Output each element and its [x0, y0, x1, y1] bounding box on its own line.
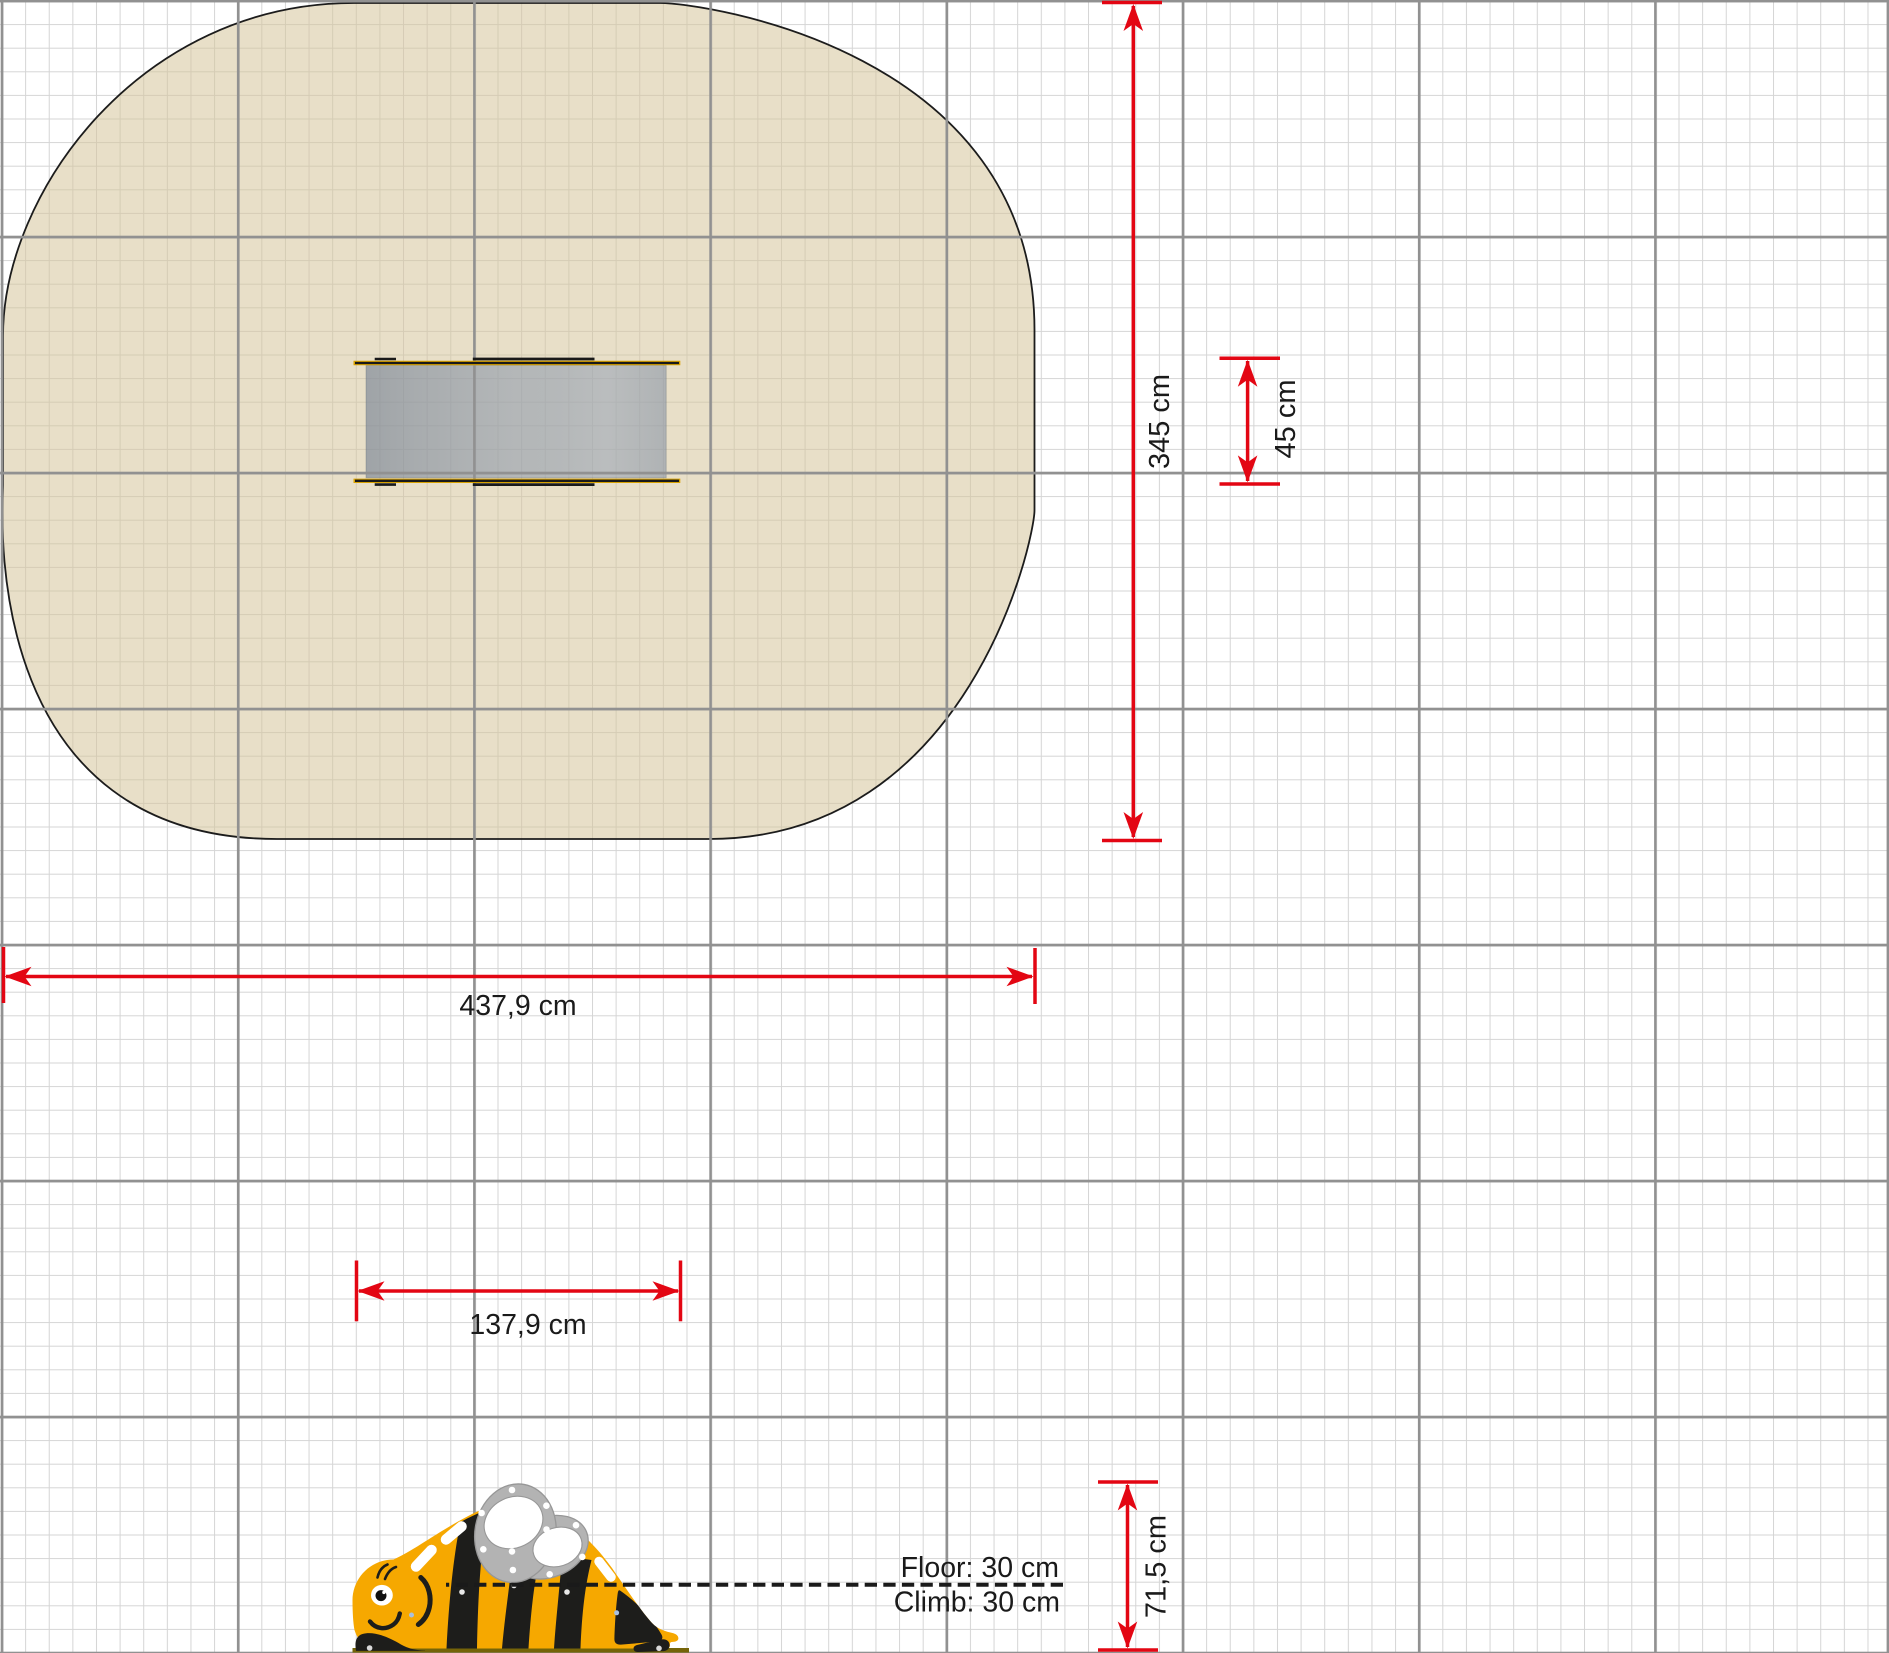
- svg-text:Floor: 30 cm: Floor: 30 cm: [901, 1552, 1059, 1584]
- svg-text:345 cm: 345 cm: [1144, 374, 1176, 469]
- svg-text:137,9 cm: 137,9 cm: [469, 1309, 586, 1341]
- svg-text:437,9 cm: 437,9 cm: [459, 990, 576, 1022]
- svg-text:Climb: 30 cm: Climb: 30 cm: [894, 1587, 1060, 1619]
- svg-text:71,5 cm: 71,5 cm: [1141, 1515, 1173, 1618]
- svg-text:45 cm: 45 cm: [1270, 380, 1302, 459]
